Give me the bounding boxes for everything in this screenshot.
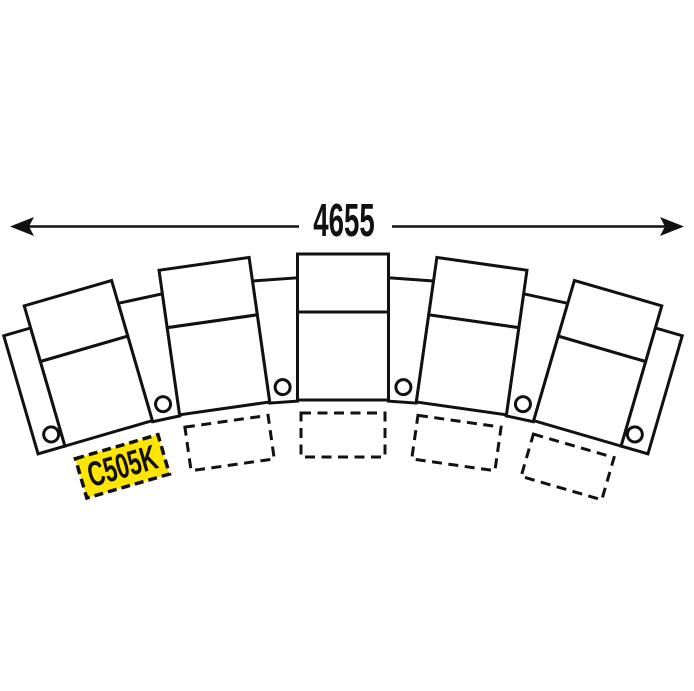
seat-3 (298, 254, 389, 400)
seat-cushion (298, 312, 389, 400)
footprint-2 (185, 415, 274, 470)
model-label-layer: C505K (75, 435, 169, 498)
seat-cushion (416, 315, 518, 415)
seat-4 (416, 257, 527, 414)
cupholder (275, 379, 291, 395)
seat-back (298, 254, 389, 312)
cupholder (395, 379, 411, 395)
seats-layer (24, 254, 662, 446)
seating-diagram-page: C505K 4655 (0, 0, 694, 691)
footprint-3 (301, 413, 385, 457)
dimension-text: 4655 (313, 196, 374, 247)
model-label-text: C505K (83, 438, 162, 495)
diagram-svg: C505K 4655 (0, 0, 694, 691)
seat-2 (159, 257, 270, 414)
seat-cushion (167, 315, 269, 415)
cupholder (154, 395, 172, 413)
footprint-5 (521, 434, 614, 500)
cupholder (514, 395, 532, 413)
footprint-4 (412, 415, 501, 470)
model-label: C505K (75, 435, 169, 498)
dimension-layer: 4655 (10, 196, 684, 247)
